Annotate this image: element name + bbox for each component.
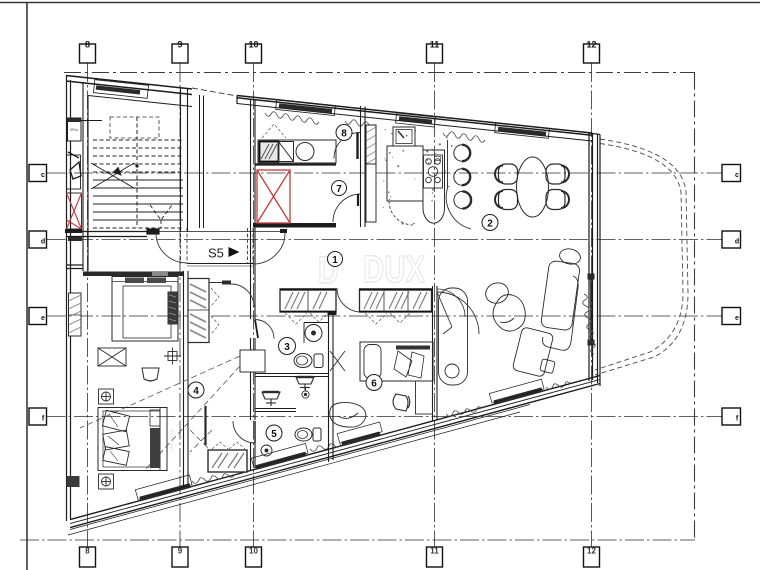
svg-text:e: e [41, 315, 45, 322]
svg-text:d: d [735, 239, 739, 246]
svg-text:5: 5 [271, 429, 277, 440]
svg-text:8: 8 [341, 129, 347, 140]
svg-text:6: 6 [371, 379, 377, 390]
svg-text:e: e [735, 315, 739, 322]
svg-text:11: 11 [430, 40, 440, 50]
svg-text:1: 1 [332, 255, 338, 266]
svg-text:S5: S5 [208, 246, 224, 261]
svg-text:DUX: DUX [363, 249, 426, 291]
svg-text:12: 12 [587, 547, 596, 556]
svg-text:2: 2 [487, 219, 493, 230]
svg-text:7: 7 [336, 184, 342, 195]
svg-text:9: 9 [177, 40, 182, 50]
svg-text:0Rm: 0Rm [70, 127, 79, 132]
svg-text:d: d [41, 239, 45, 246]
svg-text:c: c [735, 172, 739, 179]
svg-text:9: 9 [178, 547, 183, 556]
svg-text:11: 11 [430, 547, 439, 556]
svg-text:10: 10 [249, 547, 258, 556]
svg-text:8: 8 [85, 547, 90, 556]
svg-text:180x200cm: 180x200cm [169, 428, 174, 452]
svg-text:8: 8 [85, 40, 90, 50]
svg-text:12: 12 [586, 40, 596, 50]
svg-text:10: 10 [248, 40, 258, 50]
svg-text:3: 3 [284, 342, 290, 353]
svg-text:c: c [41, 172, 45, 179]
svg-text:4: 4 [193, 386, 199, 397]
